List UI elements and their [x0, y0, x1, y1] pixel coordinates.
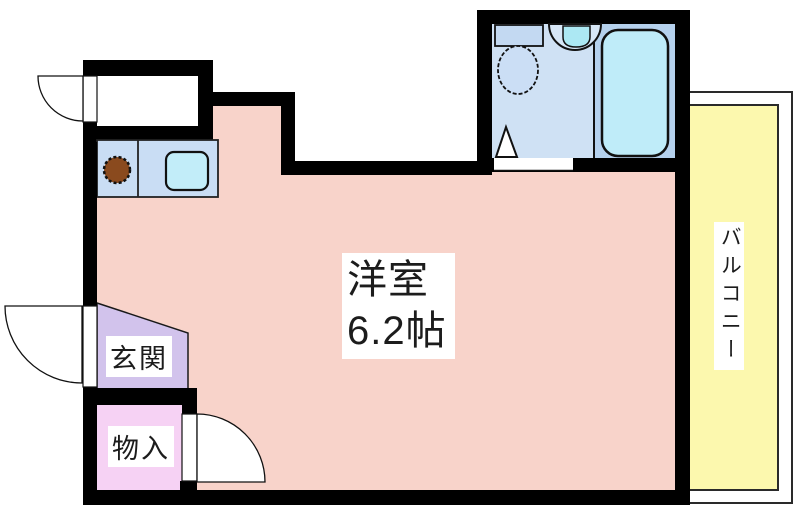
bathtub	[602, 30, 668, 156]
wall-notch-bottom	[281, 161, 492, 175]
balcony-label: バルコニー	[714, 222, 744, 370]
floorplan-canvas: 洋室 6.2帖 玄関 物入 バルコニー	[0, 0, 800, 521]
washbasin-bowl	[563, 26, 590, 47]
toilet-tank	[495, 25, 543, 46]
wall-kitchen-top	[198, 92, 295, 106]
entrance-door-opening	[83, 306, 97, 387]
kitchen-sink	[166, 152, 208, 190]
closet-interior	[97, 76, 198, 126]
storage-label: 物入	[108, 426, 174, 467]
wall-entrance-bottom	[83, 388, 197, 405]
storage-door-opening	[182, 414, 197, 481]
main-room-label: 洋室 6.2帖	[342, 253, 455, 359]
stove-burner	[104, 157, 130, 183]
closet-door-swing	[38, 76, 83, 121]
entrance-label: 玄関	[106, 336, 172, 377]
toilet-bowl	[498, 46, 538, 94]
wall-right	[675, 10, 690, 505]
wall-bottom	[83, 490, 690, 505]
entrance-door-swing	[5, 306, 82, 383]
wall-left-middle	[83, 142, 97, 307]
main-room-size: 6.2帖	[347, 306, 447, 357]
closet-door-opening	[83, 76, 97, 122]
bathroom-door-threshold	[494, 158, 573, 170]
main-room-name: 洋室	[347, 255, 447, 306]
